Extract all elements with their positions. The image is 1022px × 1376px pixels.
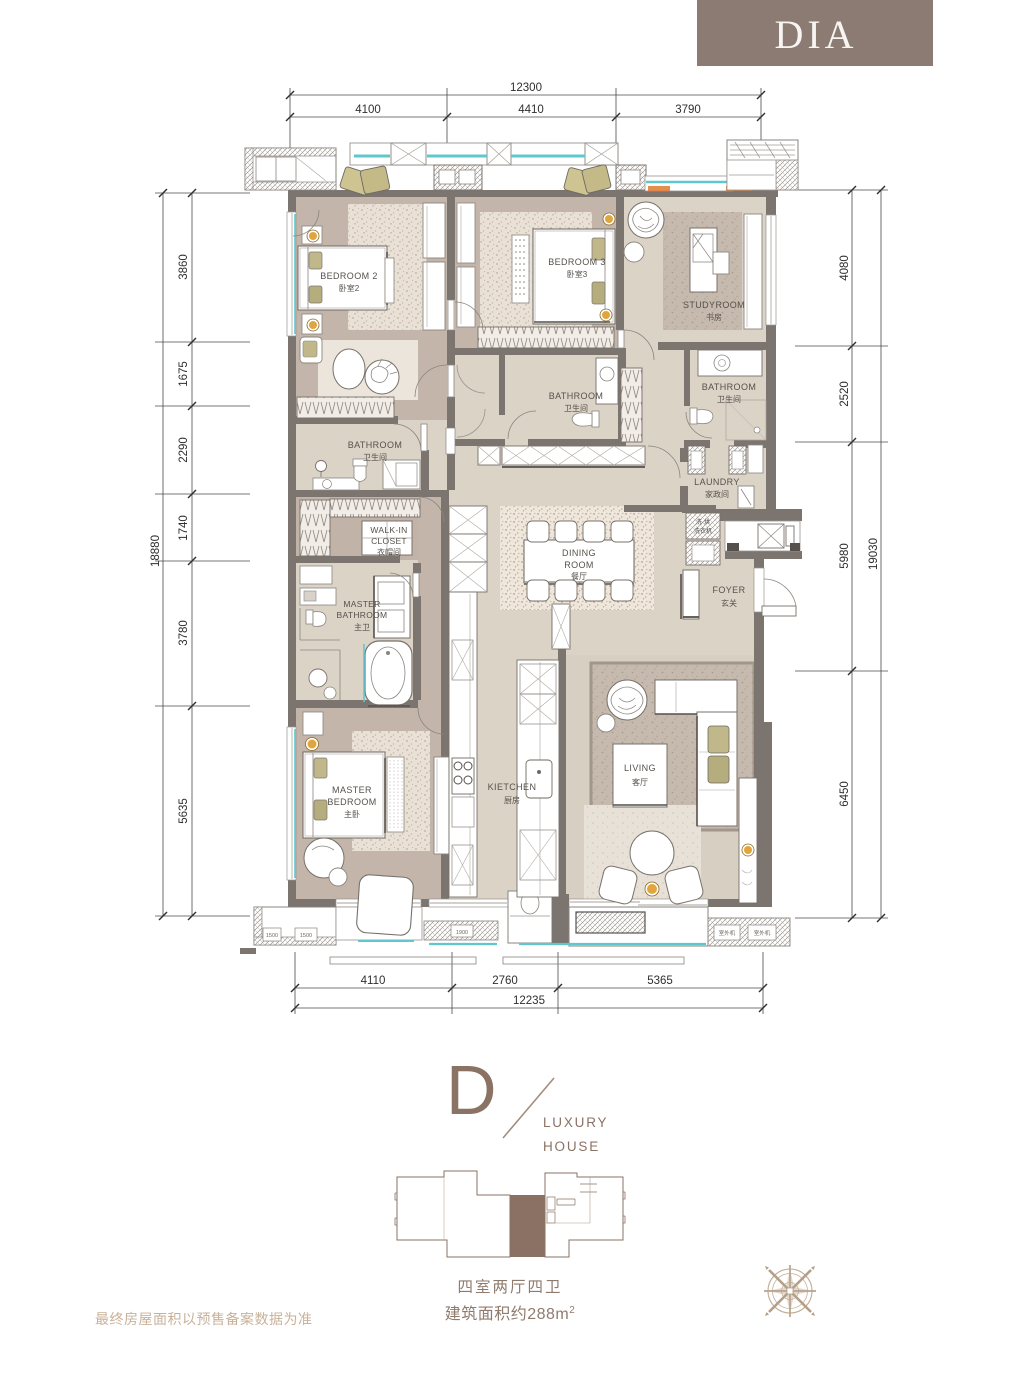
svg-text:19030: 19030 xyxy=(868,538,880,570)
svg-text:LIVING: LIVING xyxy=(624,763,656,773)
svg-text:洗衣机: 洗衣机 xyxy=(694,527,712,535)
svg-text:书房: 书房 xyxy=(706,312,722,322)
svg-text:3780: 3780 xyxy=(178,620,190,646)
svg-text:建筑面积约288m2: 建筑面积约288m2 xyxy=(445,1305,576,1323)
svg-text:WALK-IN: WALK-IN xyxy=(370,525,407,535)
svg-text:厨房: 厨房 xyxy=(504,795,520,805)
svg-text:LAUNDRY: LAUNDRY xyxy=(694,477,740,487)
svg-text:洗·烘: 洗·烘 xyxy=(696,518,710,526)
svg-text:1740: 1740 xyxy=(178,515,190,541)
svg-text:餐厅: 餐厅 xyxy=(571,572,587,581)
svg-text:2760: 2760 xyxy=(492,975,518,987)
svg-text:衣帽间: 衣帽间 xyxy=(377,547,401,557)
svg-text:18880: 18880 xyxy=(150,535,162,567)
svg-text:4100: 4100 xyxy=(355,104,381,116)
svg-text:主卫: 主卫 xyxy=(354,622,370,632)
svg-text:玄关: 玄关 xyxy=(721,598,737,608)
svg-text:卧室3: 卧室3 xyxy=(567,269,588,279)
svg-text:BATHROOM: BATHROOM xyxy=(702,382,757,392)
svg-text:DINING: DINING xyxy=(562,548,596,558)
svg-text:最终房屋面积以预售备案数据为准: 最终房屋面积以预售备案数据为准 xyxy=(95,1311,313,1327)
svg-text:4110: 4110 xyxy=(361,975,386,987)
svg-text:5365: 5365 xyxy=(647,975,673,987)
svg-text:1675: 1675 xyxy=(178,361,190,387)
svg-text:6450: 6450 xyxy=(839,781,851,807)
svg-text:12300: 12300 xyxy=(510,82,542,94)
svg-text:5980: 5980 xyxy=(839,543,851,569)
svg-text:BEDROOM: BEDROOM xyxy=(327,797,376,807)
svg-text:室外机: 室外机 xyxy=(719,929,736,937)
svg-text:3860: 3860 xyxy=(178,254,190,280)
svg-text:卧室2: 卧室2 xyxy=(339,283,360,293)
svg-text:STUDYROOM: STUDYROOM xyxy=(683,300,745,310)
svg-text:4080: 4080 xyxy=(839,255,851,281)
svg-text:4410: 4410 xyxy=(518,104,544,116)
svg-text:HOUSE: HOUSE xyxy=(543,1139,600,1154)
svg-text:卫生间: 卫生间 xyxy=(363,452,387,462)
svg-text:四室两厅四卫: 四室两厅四卫 xyxy=(457,1278,562,1296)
svg-text:家政间: 家政间 xyxy=(705,489,729,499)
svg-text:BEDROOM 3: BEDROOM 3 xyxy=(548,257,606,267)
svg-text:FOYER: FOYER xyxy=(712,585,745,595)
svg-text:D: D xyxy=(446,1051,497,1129)
svg-text:12235: 12235 xyxy=(513,995,545,1007)
svg-text:ROOM: ROOM xyxy=(564,560,594,570)
svg-text:BATHROOM: BATHROOM xyxy=(348,440,403,450)
svg-text:1900: 1900 xyxy=(456,930,468,936)
svg-text:KIETCHEN: KIETCHEN xyxy=(488,782,537,792)
svg-text:CLOSET: CLOSET xyxy=(371,536,407,546)
svg-text:1500: 1500 xyxy=(266,933,278,939)
svg-text:LUXURY: LUXURY xyxy=(543,1115,608,1130)
svg-text:BATHROOM: BATHROOM xyxy=(337,610,388,620)
svg-text:MASTER: MASTER xyxy=(332,785,372,795)
svg-text:DIA: DIA xyxy=(774,12,857,57)
svg-text:3790: 3790 xyxy=(675,104,701,116)
svg-text:5635: 5635 xyxy=(178,798,190,824)
svg-text:卫生间: 卫生间 xyxy=(564,403,588,413)
svg-text:2520: 2520 xyxy=(839,381,851,407)
svg-text:客厅: 客厅 xyxy=(632,777,648,787)
svg-text:主卧: 主卧 xyxy=(344,809,360,819)
svg-text:卫生间: 卫生间 xyxy=(717,394,741,404)
svg-text:BEDROOM 2: BEDROOM 2 xyxy=(320,271,378,281)
svg-text:MASTER: MASTER xyxy=(343,599,380,609)
svg-text:2290: 2290 xyxy=(178,437,190,463)
svg-text:1500: 1500 xyxy=(300,933,312,939)
svg-text:室外机: 室外机 xyxy=(754,929,771,937)
svg-text:BATHROOM: BATHROOM xyxy=(549,391,604,401)
